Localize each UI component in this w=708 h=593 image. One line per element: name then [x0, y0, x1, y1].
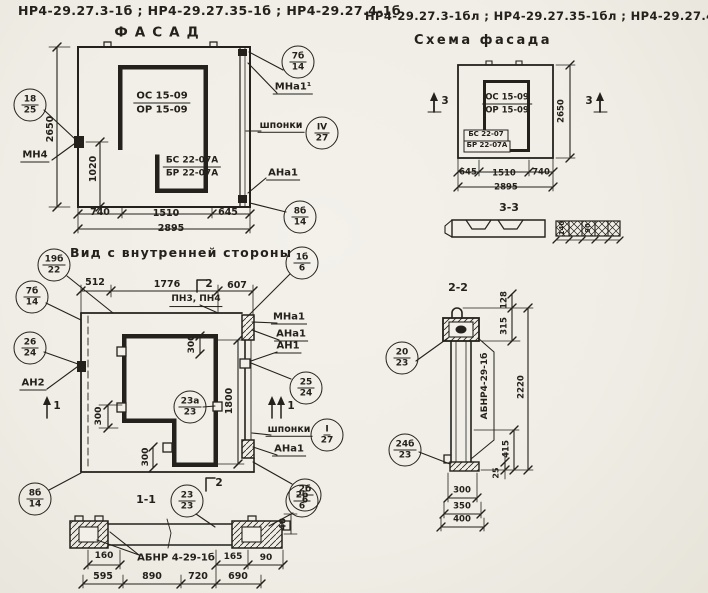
arrow-up-icon — [268, 396, 276, 405]
section-2-2-title: 2-2 — [448, 282, 468, 294]
ana1-block — [242, 440, 254, 458]
callout-value: 14 — [27, 500, 44, 510]
anchor-section-icon — [456, 326, 467, 334]
callout-value: 14 — [24, 298, 41, 308]
dim-1510: 1510 — [153, 209, 179, 219]
window-mark-bottom: ОР 15-09 — [482, 105, 532, 116]
label-pn3-pn4: ПН3, ПН4 — [169, 295, 222, 307]
title-series-right: НР4-29.27.3-1бл ; НР4-29.27.35-1бл ; НР4… — [365, 10, 708, 23]
dim-160: 160 — [95, 552, 114, 562]
label-ana1: АНа1 — [266, 168, 300, 181]
an1-tab — [240, 359, 250, 368]
callout-value: 1б — [294, 252, 311, 263]
callout-20-23: 20 23 — [386, 342, 419, 375]
dim-720: 720 — [188, 572, 208, 582]
callout-23a-23: 23а 23 — [174, 391, 207, 424]
an2-anchor-icon — [77, 361, 86, 372]
callout-value: 23 — [397, 451, 414, 461]
arrow-up-icon — [43, 396, 51, 405]
mna1-block — [242, 315, 254, 340]
dim-300-bottom: 300 — [142, 448, 152, 467]
facade-window-mark: ОС 15-09 ОР 15-09 — [133, 91, 190, 116]
label-abnr-sec22: АБНР4-29-1б — [481, 353, 491, 420]
label-an2: АН2 — [19, 378, 46, 391]
facade-title: ФАСАД — [114, 26, 205, 41]
callout-value: 6 — [297, 502, 307, 512]
callout-23-23: 23 23 — [171, 485, 204, 518]
door-mark-top: БС 22-07А — [163, 156, 221, 168]
title-series-left: НР4-29.27.3-1б ; НР4-29.27.35-1б ; НР4-2… — [18, 4, 401, 18]
dim-2895-scheme: 2895 — [494, 183, 518, 192]
callout-value: 18 — [22, 94, 39, 105]
callout-value: 23 — [394, 359, 411, 369]
lifting-loop-icon — [452, 308, 462, 318]
callout-2b-6-sec11: 2б 6 — [286, 485, 319, 518]
callout-value: 25 — [298, 377, 315, 388]
dim-300-top: 300 — [188, 335, 198, 354]
marker-1-left: 1 — [53, 401, 60, 413]
dim-90-sec33: 90 — [585, 223, 593, 233]
dim-2220: 2220 — [517, 375, 526, 399]
callout-value: 19б — [43, 254, 66, 265]
inner-view-title: Вид с внутренней стороны — [70, 246, 292, 260]
section-1-1-title: 1-1 — [136, 494, 156, 506]
dim-2895: 2895 — [158, 224, 184, 234]
marker-2-top: 2 — [205, 279, 212, 291]
callout-value: 25 — [22, 106, 39, 116]
callout-value: 24 — [298, 389, 315, 399]
callout-value: 22 — [46, 266, 63, 276]
dim-25: 25 — [493, 467, 502, 478]
dim-690: 690 — [228, 572, 248, 582]
dim-645: 645 — [218, 208, 238, 218]
callout-I-27: I 27 — [311, 419, 344, 452]
section-2-2 — [416, 290, 533, 531]
marker-2-bottom-line — [206, 478, 215, 491]
label-mna1: МНа1¹ — [273, 82, 313, 95]
callout-25-24: 25 24 — [290, 372, 323, 405]
callout-IV-27: IV 27 — [306, 117, 339, 150]
window-mark-top: ОС 15-09 — [133, 91, 190, 104]
dim-140: 140 — [559, 221, 567, 236]
dim-1020: 1020 — [89, 156, 99, 182]
dim-1776: 1776 — [154, 280, 180, 290]
scheme-door-mark-top: БС 22-07 — [468, 131, 503, 139]
callout-value: 8б — [292, 206, 309, 217]
facade-door-mark: БС 22-07А БР 22-07А — [163, 156, 221, 179]
label-shponki: шпонки — [258, 121, 305, 133]
label-ana1-lower: АНа1 — [272, 444, 306, 457]
callout-value: 23а — [179, 396, 202, 407]
dim-350: 350 — [453, 502, 471, 511]
section-3-3 — [445, 220, 623, 243]
dim-607: 607 — [227, 281, 247, 291]
label-mna1-inner: МНа1 — [271, 312, 307, 325]
section-3-3-title: 3-3 — [499, 202, 519, 214]
dim-165: 165 — [224, 553, 243, 563]
callout-value: 2б — [294, 490, 311, 501]
callout-value: 23 — [179, 502, 196, 512]
callout-value: I — [323, 424, 330, 435]
key-tab-icon — [117, 403, 126, 412]
dim-512: 512 — [85, 278, 105, 288]
dim-1510-scheme: 1510 — [492, 169, 516, 178]
callout-value: 23 — [182, 408, 199, 418]
marker-1-mid: 1 — [287, 401, 294, 413]
callout-1b-6: 1б 6 — [286, 247, 319, 280]
callout-value: 27 — [319, 436, 336, 446]
marker-3-right: 3 — [585, 96, 592, 108]
dim-645-scheme: 645 — [459, 168, 477, 177]
callout-24b-23: 24б 23 — [389, 434, 422, 467]
callout-value: 24 — [22, 349, 39, 359]
label-mn4: МН4 — [20, 150, 49, 163]
callout-value: 20 — [394, 347, 411, 358]
drawing-linework — [0, 0, 708, 593]
facade-scheme — [428, 61, 607, 191]
callout-8b-14-inner: 8б 14 — [19, 483, 52, 516]
callout-value: 8б — [27, 488, 44, 499]
scheme-door-mark-bottom: БР 22-07А — [467, 142, 508, 150]
callout-26-24: 26 24 — [14, 332, 47, 365]
scheme-title: Схема фасада — [414, 34, 552, 48]
dim-300-left: 300 — [95, 407, 105, 426]
dim-890: 890 — [142, 572, 162, 582]
dim-415: 415 — [502, 440, 511, 458]
label-shponki-inner: шпонки — [266, 425, 313, 437]
callout-value: 27 — [314, 134, 331, 144]
callout-value: 24б — [394, 439, 417, 450]
callout-value: 26 — [22, 337, 39, 348]
callout-8b-14: 8б 14 — [284, 201, 317, 234]
scheme-window-mark: ОС 15-09 ОР 15-09 — [482, 93, 532, 116]
dim-300-sec22: 300 — [453, 486, 471, 495]
arrow-up-icon — [430, 92, 438, 101]
callout-7b-14: 7б 14 — [282, 46, 315, 79]
dim-1800: 1800 — [225, 388, 235, 414]
callout-7b-14-inner: 7б 14 — [16, 281, 49, 314]
dim-40: 40 — [279, 518, 288, 530]
arrow-up-icon — [277, 396, 285, 405]
window-mark-bottom: ОР 15-09 — [133, 104, 190, 116]
callout-value: 7б — [290, 51, 307, 62]
dim-740: 740 — [90, 208, 110, 218]
key-block-top — [238, 49, 247, 56]
dim-740-scheme: 740 — [532, 168, 550, 177]
callout-value: 7б — [24, 286, 41, 297]
label-abnr-sec11: АБНР 4-29-1б — [137, 553, 215, 564]
key-tab-icon — [163, 443, 172, 452]
callout-value: 6 — [297, 264, 307, 274]
key-block-bottom — [238, 195, 247, 203]
mn4-anchor-icon — [74, 136, 84, 148]
marker-3-left: 3 — [441, 96, 448, 108]
label-an1: АН1 — [274, 341, 301, 354]
key-tab-icon — [117, 347, 126, 356]
dim-400: 400 — [453, 515, 471, 524]
dim-315: 315 — [500, 317, 509, 335]
callout-value: 23 — [179, 490, 196, 501]
arrow-up-icon — [596, 92, 604, 101]
callout-value: 14 — [292, 218, 309, 228]
door-mark-bottom: БР 22-07А — [163, 168, 221, 179]
callout-19b-22: 19б 22 — [38, 249, 71, 282]
dim-128: 128 — [500, 291, 509, 309]
dim-595: 595 — [93, 572, 113, 582]
dim-2650-scheme: 2650 — [557, 99, 566, 123]
callout-18-25: 18 25 — [14, 89, 47, 122]
dim-90: 90 — [260, 554, 273, 564]
dim-2650: 2650 — [46, 116, 56, 142]
marker-2-bottom: 2 — [215, 478, 222, 490]
window-mark-top: ОС 15-09 — [482, 93, 532, 105]
callout-value: IV — [315, 122, 329, 133]
callout-value: 14 — [290, 63, 307, 73]
drawing-sheet: НР4-29.27.3-1б ; НР4-29.27.35-1б ; НР4-2… — [0, 0, 708, 593]
